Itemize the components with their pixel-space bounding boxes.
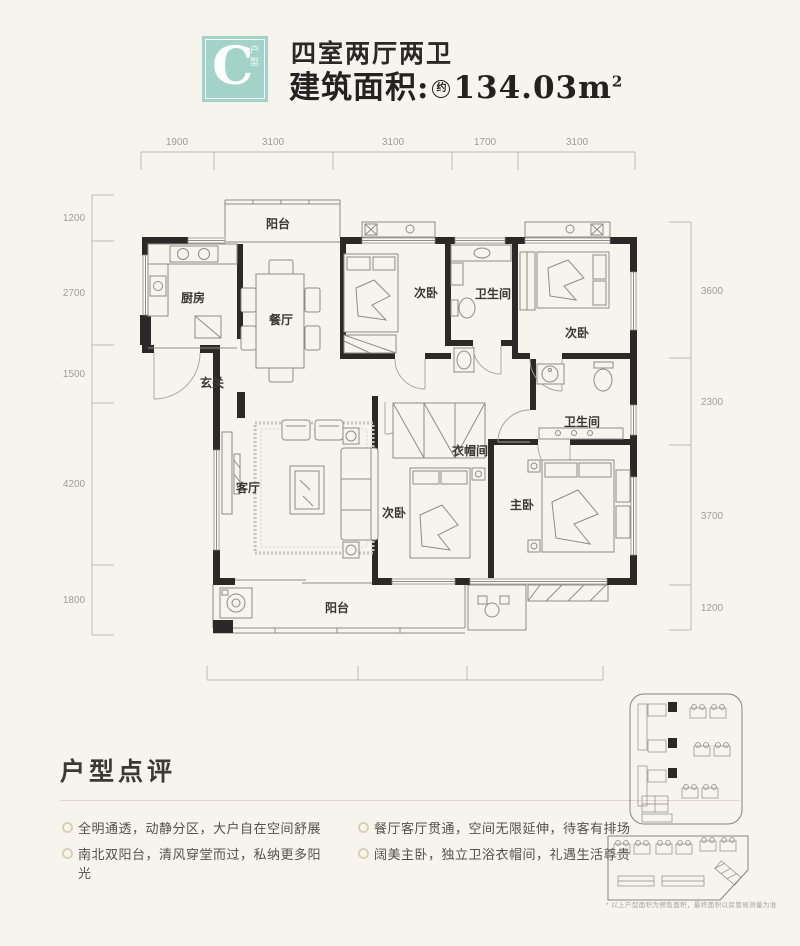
room-label-master: 主卧	[510, 497, 534, 512]
room-label-living: 客厅	[235, 480, 260, 495]
area-sup: 2	[612, 73, 623, 91]
dim-right-0: 3600	[701, 286, 724, 297]
dim-left-3: 4200	[63, 479, 86, 490]
room-label-entry: 玄关	[200, 375, 224, 390]
unit-tag: 户型	[248, 45, 261, 69]
platforms-south-east	[468, 585, 608, 630]
room-label-bedroom-b: 次卧	[565, 325, 589, 340]
approx-circle: 约	[432, 80, 450, 98]
dim-right-1: 2300	[701, 397, 724, 408]
bullet-text: 南北双阳台，清风穿堂而过，私纳更多阳光	[78, 844, 330, 882]
room-label-kitchen: 厨房	[181, 290, 205, 305]
room-label-cloakroom: 衣帽间	[452, 443, 488, 458]
area-value: 134.03m	[453, 70, 611, 106]
room-label-bath-a: 卫生间	[475, 286, 511, 301]
room-label-bedroom-c: 次卧	[382, 505, 406, 520]
dim-bottom-2: 3800	[524, 689, 547, 690]
dim-left-1: 2700	[63, 288, 86, 299]
bullet-text: 餐厅客厅贯通，空间无限延伸，待客有排场	[374, 818, 631, 837]
room-label-balcony-south: 阳台	[325, 600, 349, 615]
bullet-ring-icon	[358, 848, 369, 859]
dim-top-0: 1900	[166, 137, 189, 148]
site-parcel-south	[608, 836, 748, 900]
room-label-dining: 餐厅	[269, 312, 293, 327]
dim-top-1: 3100	[262, 137, 285, 148]
dim-bottom-1: 3000	[401, 689, 424, 690]
dimension-left: 1200 2700 1500 4200 1800	[63, 195, 114, 635]
dimension-right: 3600 2300 3700 1200	[669, 222, 724, 630]
master-furniture	[528, 460, 630, 552]
area-line: 建筑面积:约134.03m2	[289, 62, 623, 107]
disclaimer-note: * 以上户型面积为预售面积，最终面积以房管局测量为准	[606, 899, 786, 909]
dim-top-4: 3100	[566, 137, 589, 148]
area-prefix: 建筑面积:	[289, 70, 429, 106]
review-title: 户型点评	[60, 752, 176, 788]
dim-left-2: 1500	[63, 369, 86, 380]
room-label-bath-b: 卫生间	[564, 414, 600, 429]
dim-bottom-0: 4200	[271, 689, 294, 690]
dim-left-4: 1800	[63, 595, 86, 606]
unit-type-badge: C 户型	[202, 36, 268, 102]
bedroom-c-furniture	[410, 468, 485, 558]
ac-platforms-north	[362, 222, 610, 237]
dim-right-2: 3700	[701, 511, 724, 522]
dimension-bottom: 4200 3000 3800	[207, 666, 603, 690]
review-bullet: 全明通透，动静分区，大户自在空间舒展	[62, 818, 330, 837]
bedroom-a-furniture	[344, 254, 398, 353]
dim-top-3: 1700	[474, 137, 497, 148]
dimension-top: 1900 3100 3100 1700 3100	[141, 137, 635, 170]
bullet-ring-icon	[358, 822, 369, 833]
room-label-balcony-north: 阳台	[266, 216, 290, 231]
dim-left-0: 1200	[63, 213, 86, 224]
review-bullet: 南北双阳台，清风穿堂而过，私纳更多阳光	[62, 844, 330, 882]
site-parcel-north	[630, 694, 742, 824]
bullet-ring-icon	[62, 848, 73, 859]
bedroom-b-furniture	[520, 252, 609, 310]
room-label-bedroom-a: 次卧	[414, 285, 438, 300]
dim-right-3: 1200	[701, 603, 724, 614]
bullet-ring-icon	[62, 822, 73, 833]
bath-a-fixtures	[451, 245, 511, 372]
site-building-cluster	[682, 705, 730, 799]
bullet-text: 全明通透，动静分区，大户自在空间舒展	[78, 818, 321, 837]
site-map	[598, 688, 778, 903]
bullet-text: 阔美主卧，独立卫浴衣帽间，礼遇生活尊贵	[374, 844, 631, 863]
floorplan: 1900 3100 3100 1700 3100 1200 2700 1500 …	[50, 130, 750, 690]
dim-top-2: 3100	[382, 137, 405, 148]
